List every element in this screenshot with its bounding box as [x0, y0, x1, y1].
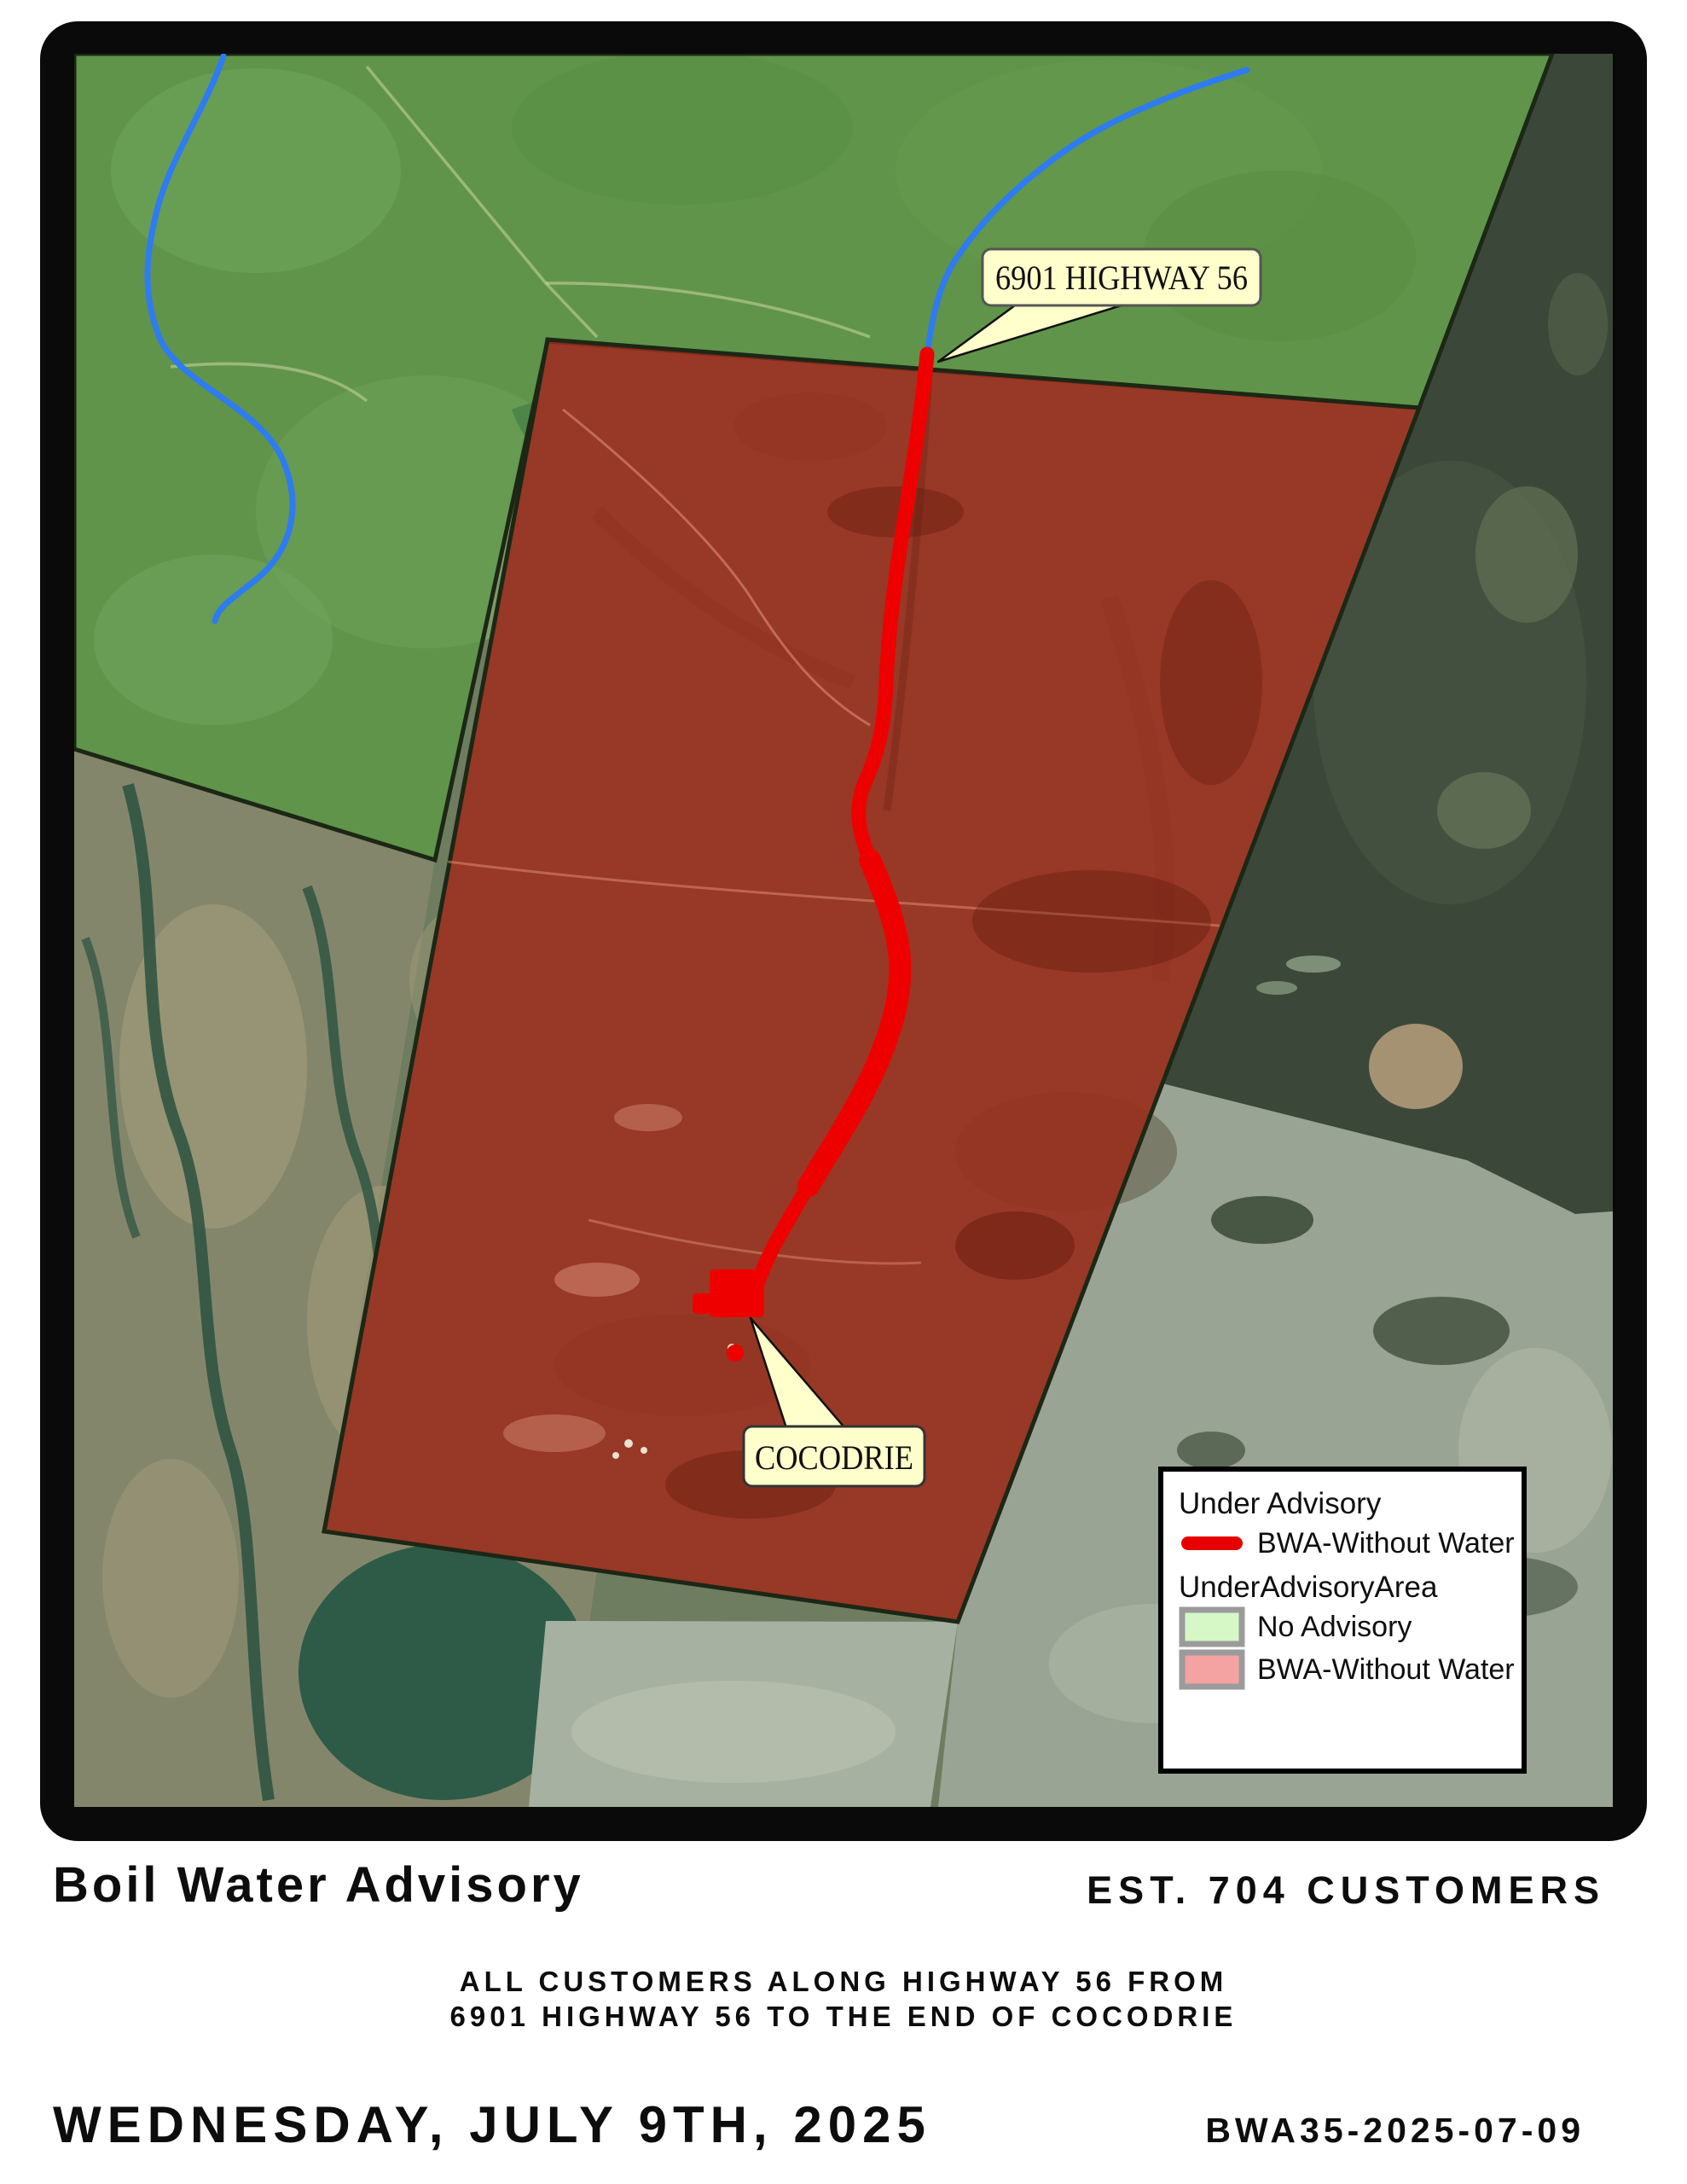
advisory-date: WEDNESDAY, JULY 9TH, 2025 [53, 2095, 931, 2154]
advisory-description: ALL CUSTOMERS ALONG HIGHWAY 56 FROM 6901… [0, 1964, 1687, 2034]
legend-line-group-title: Under Advisory [1179, 1487, 1506, 1521]
legend: Under Advisory BWA-Without Water UnderAd… [1158, 1467, 1527, 1774]
advisory-description-line1: ALL CUSTOMERS ALONG HIGHWAY 56 FROM [0, 1964, 1687, 1999]
legend-label-route: BWA-Without Water [1257, 1527, 1515, 1560]
legend-area-group-title: UnderAdvisoryArea [1179, 1571, 1506, 1605]
map-frame: 6901 HIGHWAY 56 COCODRIE or Under Adviso… [40, 21, 1647, 1841]
legend-row-route: BWA-Without Water [1179, 1523, 1506, 1564]
advisory-reference-number: BWA35-2025-07-09 [1205, 2111, 1585, 2151]
legend-row-no-advisory: No Advisory [1179, 1606, 1506, 1647]
cocodrie-callout-label: COCODRIE [755, 1438, 913, 1477]
boil-water-advisory-page: 6901 HIGHWAY 56 COCODRIE or Under Adviso… [0, 0, 1687, 2184]
legend-row-bwa-area: BWA-Without Water [1179, 1649, 1506, 1690]
page-title: Boil Water Advisory [53, 1856, 584, 1914]
no-advisory-swatch [1179, 1606, 1245, 1647]
bwa-area-swatch [1179, 1649, 1245, 1690]
route-end-dot [727, 1345, 744, 1362]
route-line-swatch [1179, 1523, 1245, 1564]
legend-label-bwa-area: BWA-Without Water [1257, 1653, 1515, 1687]
highway-callout-label: 6901 HIGHWAY 56 [995, 258, 1248, 297]
customer-estimate: EST. 704 CUSTOMERS [1087, 1868, 1605, 1913]
advisory-description-line2: 6901 HIGHWAY 56 TO THE END OF COCODRIE [0, 1999, 1687, 2034]
legend-label-no-advisory: No Advisory [1257, 1611, 1412, 1644]
